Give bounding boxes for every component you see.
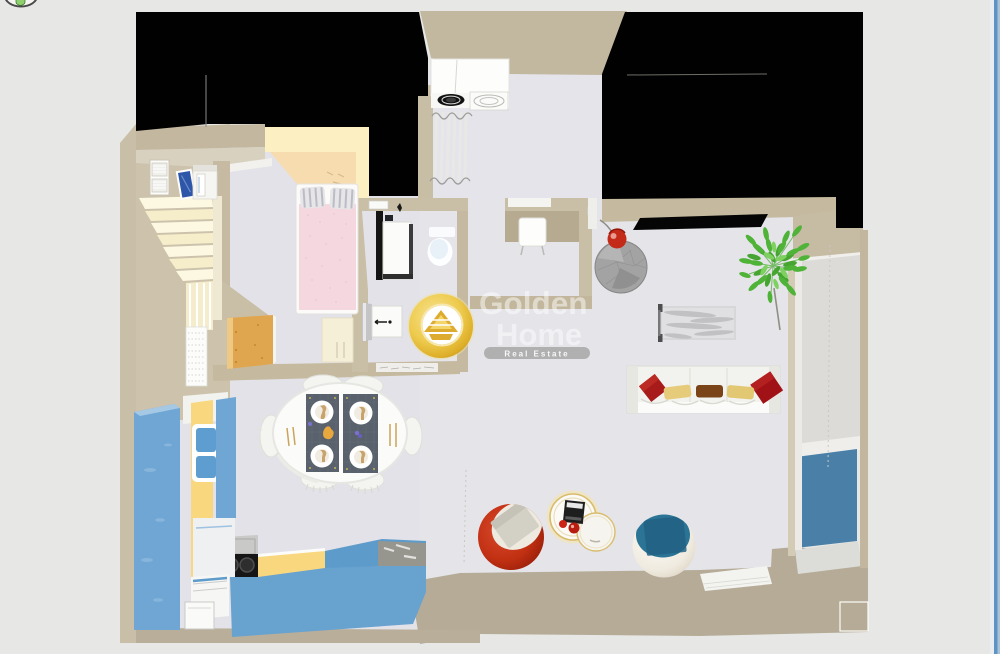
svg-text:Home: Home bbox=[496, 317, 582, 352]
svg-text:Golden: Golden bbox=[479, 285, 588, 321]
svg-text:Real Estate: Real Estate bbox=[504, 350, 569, 359]
